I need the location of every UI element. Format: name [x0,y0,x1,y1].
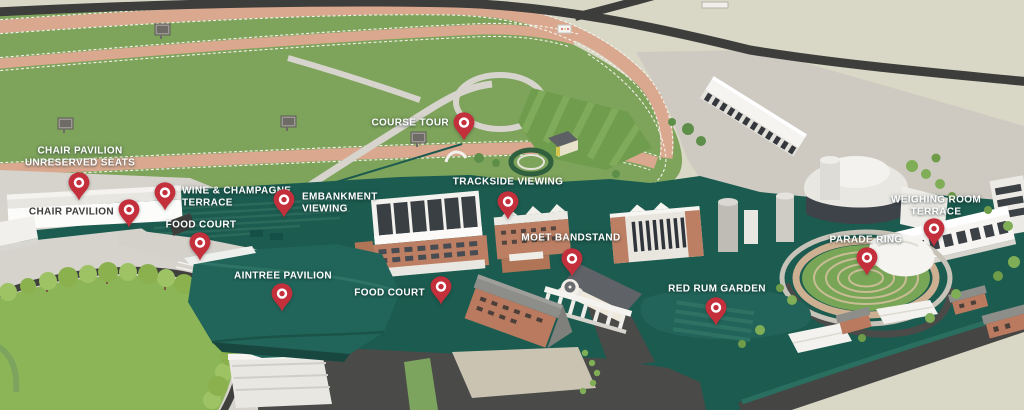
map-label-parade-ring: PARADE RING [829,234,902,246]
location-pin-icon [273,189,295,218]
location-pin-icon [923,218,945,247]
map-marker-food-court-west[interactable] [189,232,211,261]
map-marker-aintree-pavilion[interactable] [271,283,293,312]
location-pin-icon [430,276,452,305]
location-pin-icon [118,199,140,228]
map-marker-chair-pavilion[interactable] [118,199,140,228]
map-marker-moet-bandstand[interactable] [561,248,583,277]
map-marker-food-court-central[interactable] [430,276,452,305]
location-pin-icon [705,297,727,326]
location-pin-icon [189,232,211,261]
location-pin-icon [561,248,583,277]
map-label-food-court-west: FOOD COURT [166,219,237,231]
map-label-chair-pavilion: CHAIR PAVILION [29,206,114,218]
map-label-food-court-central: FOOD COURT [354,287,425,299]
aintree-course-map: COURSE TOURCHAIR PAVILIONUNRESERVED SEAT… [0,0,1024,410]
map-marker-wine-and-champagne-terrace[interactable] [154,182,176,211]
location-pin-icon [68,172,90,201]
map-label-chair-pavilion-unreserved-seats: CHAIR PAVILIONUNRESERVED SEATS [25,146,135,169]
map-marker-trackside-viewing[interactable] [497,191,519,220]
location-pin-icon [271,283,293,312]
location-pin-icon [453,112,475,141]
map-label-course-tour: COURSE TOUR [371,117,449,129]
map-marker-parade-ring[interactable] [856,247,878,276]
map-marker-red-rum-garden[interactable] [705,297,727,326]
location-pin-icon [856,247,878,276]
map-label-aintree-pavilion: AINTREE PAVILION [234,270,332,282]
map-marker-embankment-viewing[interactable] [273,189,295,218]
map-marker-weighing-room-terrace[interactable] [923,218,945,247]
map-label-red-rum-garden: RED RUM GARDEN [668,283,766,295]
map-label-trackside-viewing: TRACKSIDE VIEWING [453,176,563,188]
map-marker-course-tour[interactable] [453,112,475,141]
map-label-moet-bandstand: MOET BANDSTAND [521,232,620,244]
location-pin-icon [154,182,176,211]
marker-layer: COURSE TOURCHAIR PAVILIONUNRESERVED SEAT… [0,0,1024,410]
location-pin-icon [497,191,519,220]
map-label-weighing-room-terrace: WEIGHING ROOMTERRACE [891,195,981,218]
map-label-embankment-viewing: EMBANKMENTVIEWING [302,192,378,215]
map-marker-chair-pavilion-unreserved-seats[interactable] [68,172,90,201]
